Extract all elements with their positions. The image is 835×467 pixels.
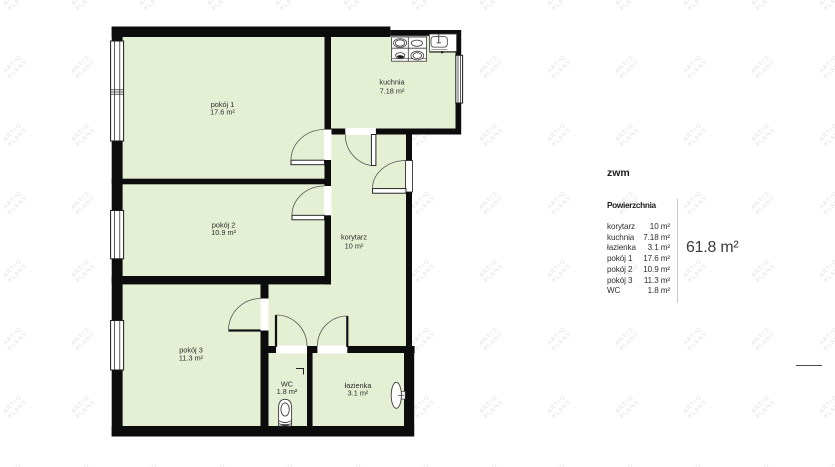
- svg-text:10 m²: 10 m²: [345, 241, 364, 250]
- svg-text:kuchnia: kuchnia: [379, 77, 405, 86]
- svg-text:10.9 m²: 10.9 m²: [211, 228, 236, 237]
- svg-text:1.8 m²: 1.8 m²: [277, 387, 298, 396]
- svg-text:11.3 m²: 11.3 m²: [179, 354, 204, 363]
- svg-text:3.1 m²: 3.1 m²: [348, 389, 369, 398]
- svg-text:17.6 m²: 17.6 m²: [210, 108, 235, 117]
- svg-text:korytarz: korytarz: [341, 233, 367, 242]
- svg-text:7.18 m²: 7.18 m²: [380, 87, 405, 96]
